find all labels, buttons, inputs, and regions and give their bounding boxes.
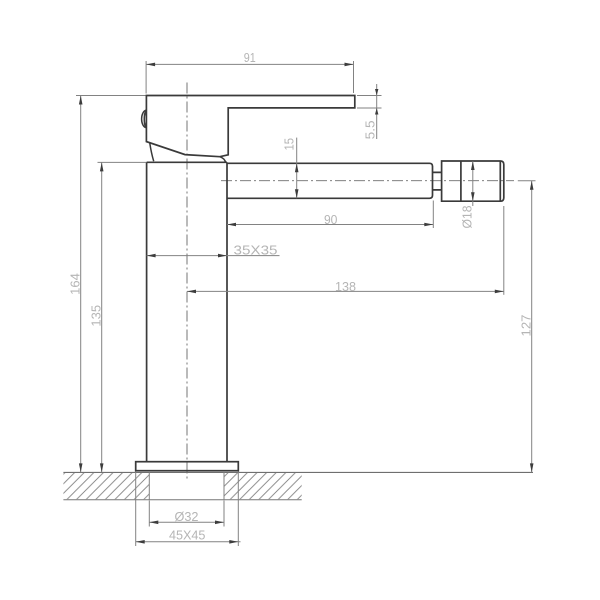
svg-text:164: 164 — [67, 273, 82, 295]
svg-text:90: 90 — [324, 212, 338, 227]
svg-text:35X35: 35X35 — [234, 242, 278, 257]
svg-text:135: 135 — [88, 305, 103, 327]
svg-text:5.5: 5.5 — [363, 120, 378, 139]
svg-text:127: 127 — [518, 315, 533, 337]
svg-text:138: 138 — [335, 279, 356, 294]
svg-text:91: 91 — [244, 50, 256, 65]
svg-text:45X45: 45X45 — [169, 528, 206, 543]
svg-text:Ø32: Ø32 — [175, 509, 199, 524]
svg-text:Ø18: Ø18 — [460, 206, 475, 229]
svg-text:15: 15 — [282, 138, 297, 151]
